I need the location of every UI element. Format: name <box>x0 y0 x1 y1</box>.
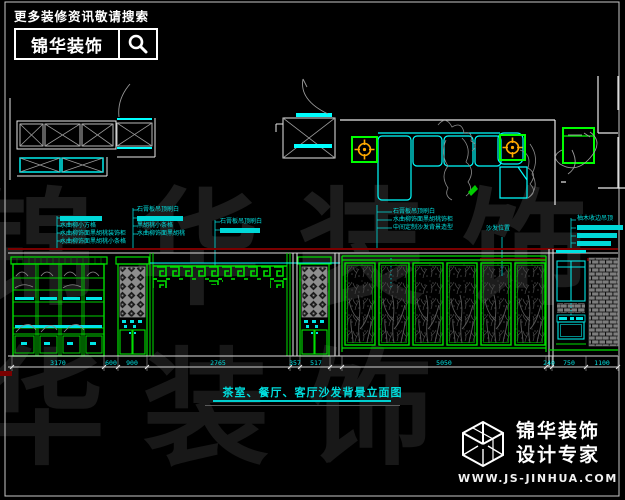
drawing-title: 茶室、餐厅、客厅沙发背景立面图 <box>0 384 625 400</box>
elevation-display-cabinet <box>11 257 107 356</box>
annotation-group-cabinet: 水曲柳小方格 水曲柳饰面黑胡桃装饰柜 水曲柳饰面黑胡桃小条格 <box>60 214 126 246</box>
elevation-lattice-cabinet <box>298 257 331 356</box>
dim-label: 600 <box>105 359 117 367</box>
highlighted-label-bar <box>60 216 102 221</box>
annotation-group-right: 柚木收边吊顶 <box>577 215 623 247</box>
elevation-lattice-cabinet <box>116 257 149 356</box>
plan-left-cabinets <box>10 84 155 180</box>
annotation-group-sofa-wall: 石膏板吊顶刷白 水曲柳饰面黑胡桃饰柜 中间定制沙发背景造型 <box>393 208 453 232</box>
plan-walls <box>340 76 625 205</box>
dim-label: 750 <box>563 359 575 367</box>
footer-url: WWW.JS-JINHUA.COM <box>458 472 620 485</box>
annotation-label: 柚木收边吊顶 <box>577 215 623 223</box>
plan-leaf-icon <box>468 185 478 196</box>
annotation-group-ceiling: 石膏板吊顶刷白 <box>220 218 262 234</box>
highlighted-label-bar <box>137 216 183 221</box>
annotation-label: 石膏板吊顶刷白 <box>220 218 262 226</box>
crosshair-target-icon <box>352 137 377 162</box>
elevation-tree-panels <box>342 256 546 352</box>
footer-brand-line2: 设计专家 <box>516 443 600 467</box>
dim-label: 2765 <box>210 359 226 367</box>
elevation-right-section <box>549 249 618 367</box>
brand-search-box: 锦华装饰 <box>14 28 158 60</box>
dim-label: 240 <box>543 359 555 367</box>
highlighted-label-bar <box>577 225 623 230</box>
plan-middle-cabinet <box>276 79 335 158</box>
annotation-label: 沙发位置 <box>486 225 510 233</box>
annotation-label: 石膏板吊顶刷白 <box>137 206 185 214</box>
dim-label: 3170 <box>50 359 66 367</box>
magnifier-cell <box>118 30 156 58</box>
title-underline <box>213 400 391 402</box>
plan-sofa <box>378 133 527 200</box>
dim-label: 517 <box>310 359 322 367</box>
annotation-label: 石膏板吊顶刷白 <box>393 208 453 216</box>
brand-name: 锦华装饰 <box>16 30 118 58</box>
footer-brand-line1: 锦华装饰 <box>516 419 600 443</box>
dim-label: 1100 <box>594 359 610 367</box>
plan-planter <box>555 128 597 174</box>
annotation-label: 水曲柳小方格 <box>60 222 126 230</box>
header-brand-block: 更多装修资讯敬请搜索 锦华装饰 <box>14 6 158 60</box>
annotation-label: 水曲柳饰面黑胡桃饰柜 <box>393 216 453 224</box>
elevation-dimension-chain: 3170 600 900 2765 357 517 5050 240 750 1… <box>0 356 620 376</box>
cube-logo-icon <box>458 419 508 469</box>
annotation-label: 水曲柳饰面黑胡桃装饰柜 <box>60 230 126 238</box>
annotation-label: 黑胡桃小条格 <box>137 222 185 230</box>
dim-label: 900 <box>126 359 138 367</box>
annotation-group-lattice: 石膏板吊顶刷白 黑胡桃小条格 水曲柳饰面黑胡桃 <box>137 206 185 238</box>
highlighted-label-bar <box>220 228 260 233</box>
search-hint-text: 更多装修资讯敬请搜索 <box>14 6 158 25</box>
annotation-label: 水曲柳饰面黑胡桃 <box>137 230 185 238</box>
footer-brand-block: 锦华装饰 设计专家 WWW.JS-JINHUA.COM <box>458 419 620 485</box>
cad-sheet: 锦华装饰 锦华装饰 <box>0 0 625 500</box>
annotation-sofa-position: 沙发位置 <box>486 225 510 233</box>
dim-label: 5050 <box>436 359 452 367</box>
annotation-label: 水曲柳饰面黑胡桃小条格 <box>60 238 126 246</box>
crosshair-target-icon <box>500 135 525 160</box>
search-icon <box>127 33 149 55</box>
dim-label: 357 <box>289 359 301 367</box>
highlighted-label-bar <box>577 233 617 238</box>
annotation-label: 中间定制沙发背景造型 <box>393 224 453 232</box>
title-underline-2 <box>205 405 400 406</box>
highlighted-label-bar <box>577 241 611 246</box>
